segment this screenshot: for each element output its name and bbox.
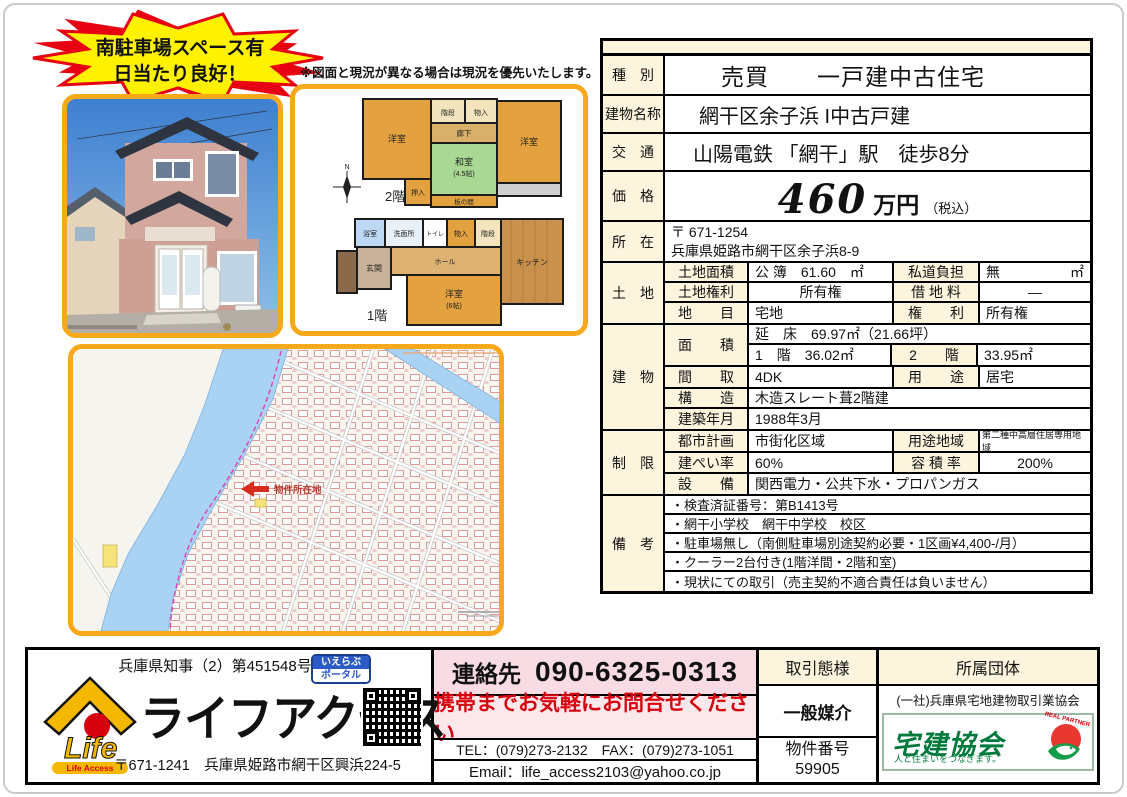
room-label: 板の間: [454, 197, 474, 206]
room-label: 洋室: [388, 133, 406, 144]
badge-line2: 日当たり良好！: [113, 62, 246, 85]
layout-key: 間 取: [665, 367, 749, 387]
room-label: トイレ: [426, 232, 444, 238]
use-key: 用 途: [894, 367, 980, 387]
map-marker-label: 物件所在地: [274, 484, 322, 496]
badge-line1: 南駐車場スペース有: [96, 36, 265, 59]
land-rent-value: ―: [980, 283, 1090, 301]
spec-table: 種 別 売買 一戸建中古住宅 建物名称 網干区余子浜 I中古戸建 交 通 山陽電…: [600, 38, 1093, 594]
access-value: 山陽電鉄 「網干」駅 徒歩8分: [665, 134, 1090, 170]
access-label: 交 通: [603, 134, 665, 170]
table-top-strip: [603, 41, 1090, 56]
room-label: (4.5帖): [453, 169, 474, 178]
zone-key: 用途地域: [894, 431, 980, 451]
remark-item: ・検査済証番号：第B1413号: [665, 496, 1090, 513]
structure-value: 木造スレート葺2階建: [749, 389, 1090, 407]
remarks-label: 備 考: [603, 496, 665, 591]
ielove-portal-badge: いえらぶ ポータル: [311, 654, 371, 684]
floorplan: 洋室 階段 物入 廊下 和室 (4.5帖) 洋室 押入 板の間 2階 N: [290, 84, 588, 336]
utilities-value: 関西電力・公共下水・プロパンガス: [749, 474, 1090, 494]
right-value: 所有権: [980, 303, 1090, 323]
room-label: 洋室: [445, 288, 463, 299]
land-category-key: 地 目: [665, 303, 749, 323]
layout-value: 4DK: [749, 367, 894, 387]
structure-key: 構 造: [665, 389, 749, 407]
room-label: ホール: [435, 258, 456, 266]
land-right-key: 土地権利: [665, 283, 749, 301]
land-label: 土 地: [603, 263, 665, 323]
email-address: Email：life_access2103@yahoo.co.jp: [434, 759, 756, 782]
svg-text:N: N: [344, 164, 349, 171]
building-name-value: 網干区余子浜 I中古戸建: [665, 96, 1090, 132]
type-value: 売買 一戸建中古住宅: [665, 56, 1090, 94]
deal-type-header: 取引態様: [759, 650, 876, 686]
contact-section: 連絡先 090-6325-0313 携帯までお気軽にお問合せください TEL：(…: [431, 650, 759, 782]
land-area-key: 土地面積: [665, 263, 749, 281]
built-value: 1988年3月: [749, 409, 1090, 429]
total-floor-area: 延 床 69.97㎡（21.66坪）: [749, 325, 1090, 343]
room-label: 洋室: [520, 136, 538, 147]
portal-badge-bottom: ポータル: [313, 669, 369, 682]
remark-item: ・駐車場無し（南側駐車場別途契約必要・1区画¥4,400-/月）: [665, 534, 1090, 551]
legal-section: 取引態様 一般媒介 物件番号 59905 所属団体 (一社)兵庫県宅地建物取引業…: [759, 650, 1097, 782]
right-key: 権 利: [894, 303, 980, 323]
floor1-label: 1階: [367, 308, 387, 323]
price-label: 価 格: [603, 172, 665, 220]
footer: 兵庫県知事（2）第451548号 Life Life Access ライフアクセ…: [25, 647, 1100, 785]
property-flyer: 南駐車場スペース有 日当たり良好！: [0, 0, 1127, 797]
road-burden-unit: ㎡: [1070, 262, 1084, 282]
room-label: 物入: [454, 229, 468, 238]
room-label: 和室: [455, 156, 473, 167]
city-plan-value: 市街化区域: [749, 431, 894, 451]
road-burden-value: 無: [986, 262, 1000, 282]
logo-sub-text: Life Access: [67, 763, 114, 773]
takken-tagline: 人と住まいをつなぎます。: [894, 752, 1001, 765]
price-tax-note: （税込）: [925, 198, 977, 217]
contact-label: 連絡先: [452, 655, 521, 689]
room-label: (6帖): [446, 301, 462, 310]
road-burden-key: 私道負担: [894, 263, 980, 281]
postal-code: 〒 671-1254: [671, 223, 748, 241]
remark-item: ・現状にての取引（売主契約不適合責任は負いません）: [665, 572, 1090, 591]
floor2-area: 33.95㎡: [978, 345, 1090, 365]
building-name-label: 建物名称: [603, 96, 665, 132]
room-label: 洗面所: [394, 229, 415, 238]
floor1-area: 1 階 36.02㎡: [749, 345, 892, 365]
deal-type-value: 一般媒介: [759, 686, 876, 738]
address-value: 兵庫県姫路市網干区余子浜8-9: [671, 242, 859, 260]
portal-badge-top: いえらぶ: [313, 656, 369, 669]
floor2-label: 2階: [385, 189, 405, 204]
built-key: 建築年月: [665, 409, 749, 429]
address-label: 所 在: [603, 222, 665, 261]
remark-item: ・網干小学校 網干中学校 校区: [665, 515, 1090, 532]
building-label: 建 物: [603, 325, 665, 429]
contact-note: 携帯までお気軽にお問合せください: [434, 694, 756, 738]
qr-code: [361, 686, 423, 748]
price-unit: 万円: [873, 186, 919, 220]
agency-section: 兵庫県知事（2）第451548号 Life Life Access ライフアクセ…: [28, 650, 431, 782]
location-map: 物件所在地: [68, 344, 504, 636]
room-label: 浴室: [363, 229, 377, 238]
bcr-value: 60%: [749, 453, 894, 472]
utilities-key: 設 備: [665, 474, 749, 494]
room-label: 玄関: [366, 263, 382, 273]
far-value: 200%: [980, 453, 1090, 472]
room-label: 廊下: [457, 128, 472, 138]
room-label: 階段: [481, 229, 495, 238]
price-number: 460: [778, 176, 868, 223]
room-label: 物入: [474, 108, 488, 117]
bcr-key: 建ぺい率: [665, 453, 749, 472]
room-label: キッチン: [516, 258, 548, 267]
limit-label: 制 限: [603, 431, 665, 494]
remark-item: ・クーラー2台付き(1階洋間・2階和室): [665, 553, 1090, 570]
land-category-value: 宅地: [749, 303, 894, 323]
city-plan-key: 都市計画: [665, 431, 749, 451]
compass-icon: N: [333, 164, 361, 203]
tel-fax: TEL：(079)273-2132 FAX：(079)273-1051: [434, 738, 756, 759]
use-value: 居宅: [980, 367, 1090, 387]
type-label: 種 別: [603, 56, 665, 94]
house-photo: [62, 94, 283, 338]
hato-mark-icon: [1042, 721, 1086, 765]
area-key: 面 積: [665, 325, 749, 365]
land-area-value: 公 簿 61.60 ㎡: [749, 263, 894, 281]
phone-number: 090-6325-0313: [535, 656, 738, 688]
room-label: 階段: [441, 108, 455, 117]
far-key: 容 積 率: [894, 453, 980, 472]
company-address: 〒671-1241 兵庫県姫路市網干区興浜224-5: [114, 754, 401, 775]
association-name: (一社)兵庫県宅地建物取引業協会: [879, 690, 1097, 709]
org-header: 所属団体: [879, 650, 1097, 686]
floor2-key: 2 階: [892, 345, 978, 365]
room-label: 押入: [411, 188, 425, 197]
zone-value: 第二種中高層住居専用地域: [980, 431, 1090, 451]
floorplan-disclaimer: ※図面と現況が異なる場合は現況を優先いたします。: [300, 62, 598, 81]
land-rent-key: 借 地 料: [894, 283, 980, 301]
property-number: 59905: [795, 760, 840, 780]
logo-life-text: Life: [64, 732, 117, 765]
takken-association-logo: 宅建協会 人と住まいをつなぎます。 REAL PARTNER: [882, 713, 1094, 771]
land-right-value: 所有権: [749, 283, 894, 301]
property-number-label: 物件番号: [785, 740, 849, 760]
